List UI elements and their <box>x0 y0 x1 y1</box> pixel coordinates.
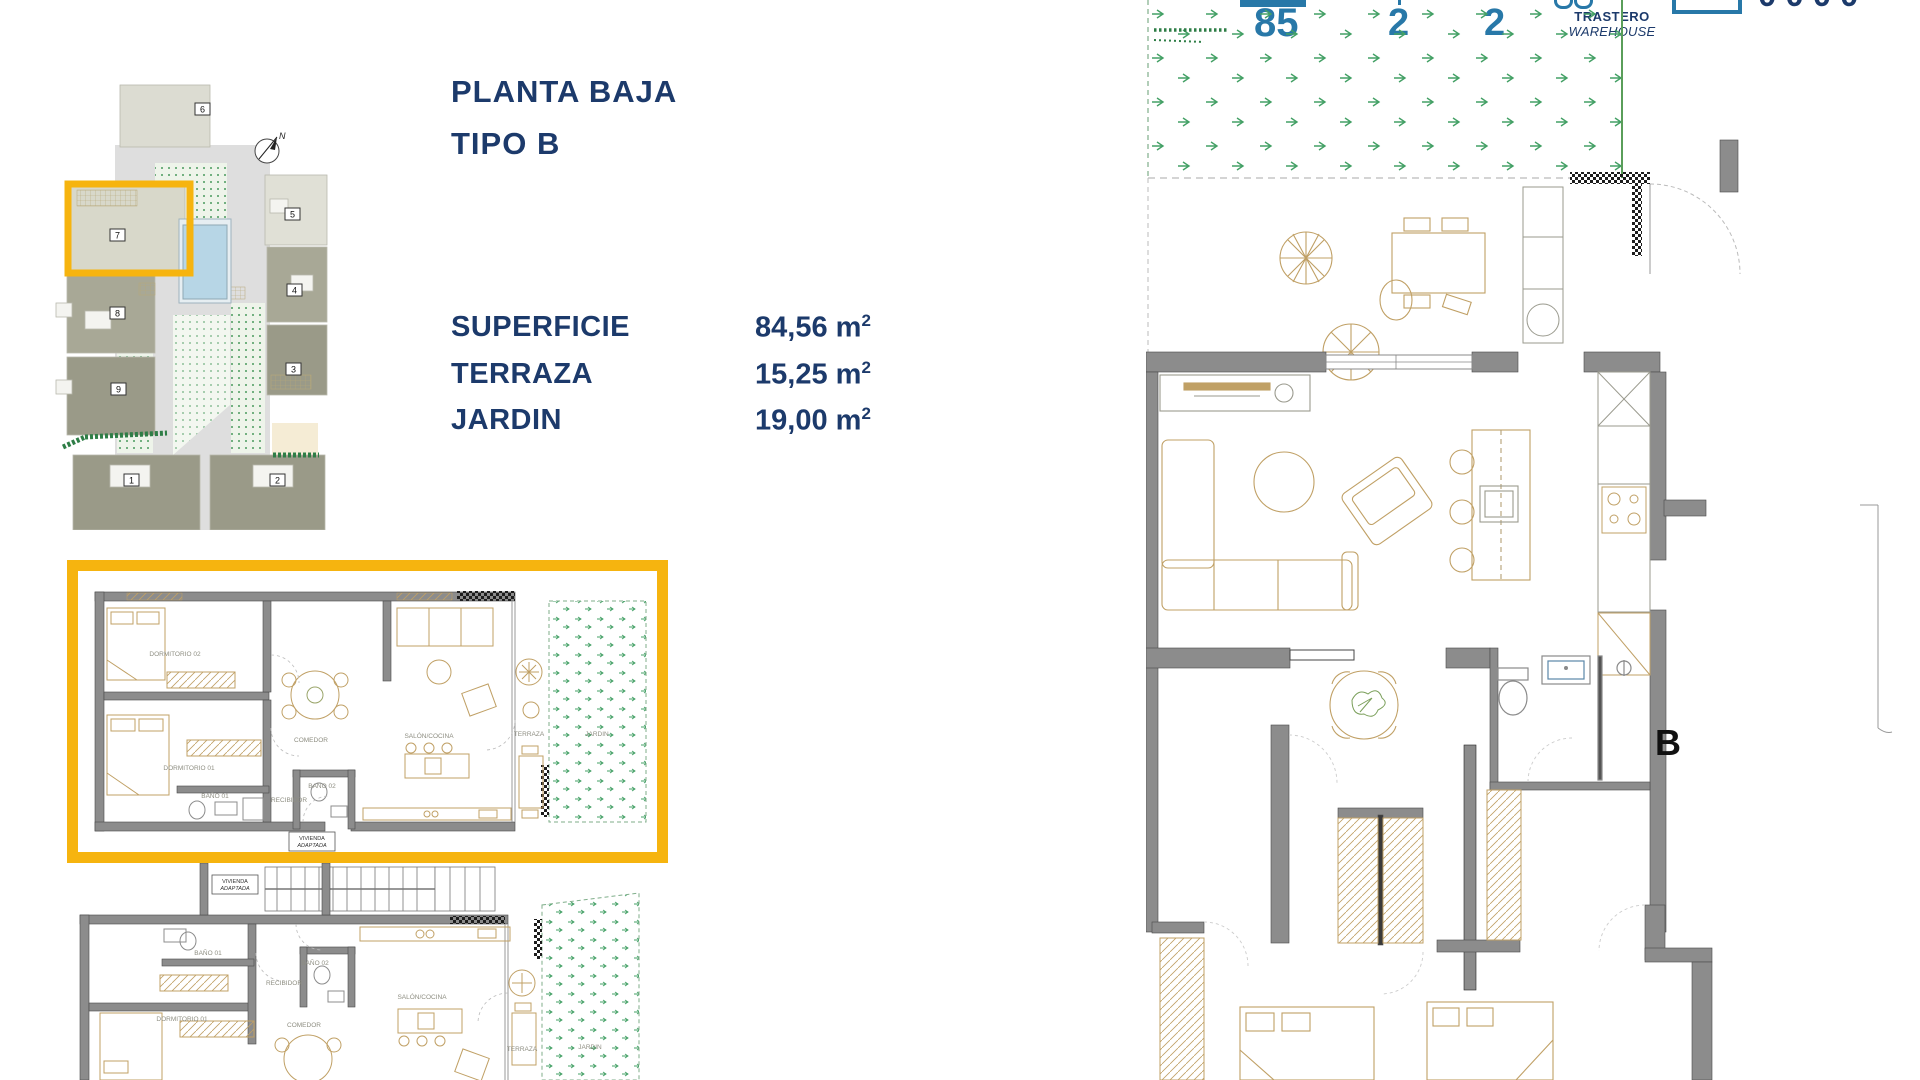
unit-label-1: 1 <box>129 476 134 486</box>
vivienda-line2: ADAPTADA <box>219 886 250 892</box>
spec-row-terraza: TERRAZA 15,25 m2 <box>451 358 931 398</box>
unit-label-5: 5 <box>290 210 295 220</box>
vivienda-line1: VIVIENDA <box>222 879 248 885</box>
living-window <box>1326 355 1472 369</box>
page-title-line2: TIPO B <box>451 126 560 162</box>
jardin-area <box>549 601 646 822</box>
vivienda-adaptada-tag: VIVIENDA ADAPTADA <box>289 832 335 851</box>
label-bano02: BAÑO 02 <box>308 781 336 790</box>
door-arcs-2 <box>256 924 508 1023</box>
unit-label-7: 7 <box>115 231 120 241</box>
label-salon: SALÓN/COCINA <box>404 731 454 740</box>
vivienda-line1: VIVIENDA <box>299 836 325 842</box>
privacy-screen-v <box>1632 184 1642 256</box>
lower-floorplan: VIVIENDA ADAPTADA <box>60 863 680 1080</box>
label-jardin: JARDIN <box>578 1044 602 1051</box>
unit-label-2: 2 <box>275 476 280 486</box>
unit-letter: B <box>1655 722 1681 763</box>
living-furniture <box>1160 375 1434 610</box>
label-recibidor: RECIBIDOR <box>271 797 307 804</box>
label-dormitorio02: DORMITORIO 02 <box>149 651 201 658</box>
label-dormitorio01: DORMITORIO 01 <box>156 1016 208 1023</box>
label-terraza: TERRAZA <box>507 1046 538 1053</box>
hall <box>1290 650 1398 739</box>
gallery-wall <box>1720 140 1738 192</box>
vivienda-line2: ADAPTADA <box>296 843 327 849</box>
label-bano01: BAÑO 01 <box>201 791 229 800</box>
plan-sheet-page: N 6 5 7 4 8 3 9 1 2 PLANTA BAJA TIPO B S… <box>0 0 1920 1080</box>
site-plan: N 6 5 7 4 8 3 9 1 2 <box>55 75 330 530</box>
kitchen-island <box>1450 430 1530 580</box>
spec-label: SUPERFICIE <box>451 311 630 344</box>
label-salon: SALÓN/COCINA <box>397 992 447 1001</box>
unit-label-6: 6 <box>200 105 205 115</box>
terrace-storage <box>1523 187 1563 343</box>
dimension-line <box>1860 505 1892 733</box>
spec-value: 15,25 m2 <box>755 358 871 392</box>
jardin-area-2 <box>542 893 639 1080</box>
page-title-line1: PLANTA BAJA <box>451 74 677 110</box>
spec-row-jardin: JARDIN 19,00 m2 <box>451 404 931 444</box>
unit-label-3: 3 <box>291 365 296 375</box>
unit-label-8: 8 <box>115 309 120 319</box>
large-floorplan: B <box>1146 0 1920 1080</box>
label-jardin: JARDIN <box>585 731 609 738</box>
stairs <box>265 867 495 911</box>
spec-label: JARDIN <box>451 404 562 437</box>
compass-n-label: N <box>279 131 286 141</box>
north-compass-icon: N <box>255 131 286 163</box>
label-terraza: TERRAZA <box>514 731 545 738</box>
entry-door-arc <box>1650 184 1740 274</box>
spec-row-superficie: SUPERFICIE 84,56 m2 <box>451 311 931 351</box>
label-comedor: COMEDOR <box>294 737 328 744</box>
label-bano01: BAÑO 01 <box>194 948 222 957</box>
label-dormitorio01: DORMITORIO 01 <box>163 765 215 772</box>
privacy-screen-h <box>1570 172 1650 184</box>
highlighted-floorplan: DORMITORIO 02 DORMITORIO 01 BAÑO 01 RECI… <box>67 560 668 863</box>
unit-label-4: 4 <box>292 286 297 296</box>
unit-label-9: 9 <box>116 385 121 395</box>
kitchen-counter <box>1598 372 1650 675</box>
label-recibidor: RECIBIDOR <box>266 980 302 987</box>
spec-value: 84,56 m2 <box>755 311 871 345</box>
label-bano02: BAÑO 02 <box>301 958 329 967</box>
label-comedor: COMEDOR <box>287 1022 321 1029</box>
spec-value: 19,00 m2 <box>755 404 871 438</box>
vivienda-adaptada-tag-2: VIVIENDA ADAPTADA <box>212 875 258 894</box>
spec-label: TERRAZA <box>451 358 593 391</box>
